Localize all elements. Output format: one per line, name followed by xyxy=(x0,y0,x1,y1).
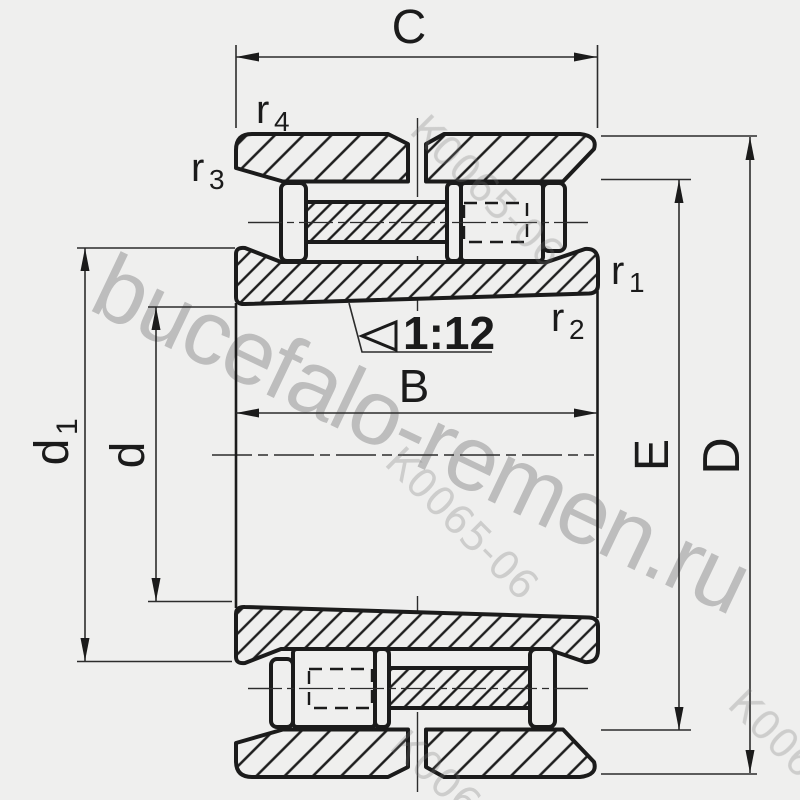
label-r3-base: r xyxy=(191,146,204,190)
label-r2-base: r xyxy=(551,296,564,340)
label-r4-base: r xyxy=(256,88,269,132)
label-r4-subscript: 4 xyxy=(274,106,290,137)
bearing-cross-section-diagram: bucefalo-remen.ru xyxy=(0,0,800,800)
label-r2-subscript: 2 xyxy=(569,314,585,345)
label-C: C xyxy=(392,1,427,54)
cage-side-plate xyxy=(271,659,293,727)
label-D: D xyxy=(693,437,751,475)
label-r3-subscript: 3 xyxy=(209,164,225,195)
label-d1-base: d xyxy=(26,439,79,466)
label-E: E xyxy=(626,439,679,471)
outer-ring-top-left-section xyxy=(236,134,408,182)
label-r1-subscript: 1 xyxy=(629,267,645,298)
bearing-drawing-canvas: bucefalo-remen.ru xyxy=(0,0,800,800)
taper-ratio-label: 1:12 xyxy=(403,307,495,359)
label-d: d xyxy=(102,442,155,469)
label-d1-subscript: 1 xyxy=(51,418,84,435)
label-r1-base: r xyxy=(611,249,624,293)
label-B: B xyxy=(399,360,430,412)
